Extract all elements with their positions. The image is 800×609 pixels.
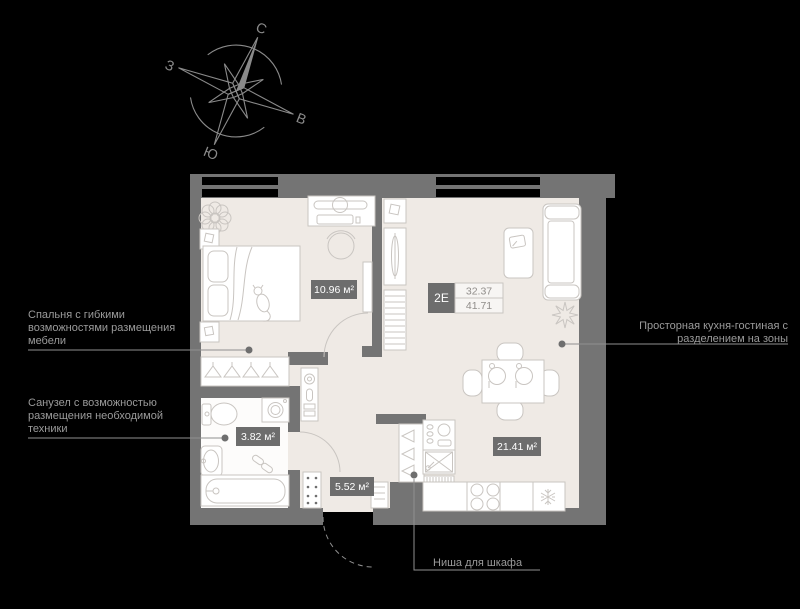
wall-bathroom-east-lower — [288, 470, 300, 508]
entrance-door-swing-arc — [323, 517, 373, 567]
bathroom-note-line3: техники — [28, 423, 67, 435]
bedroom-note-line3: мебели — [28, 335, 66, 347]
compass-point-south — [209, 89, 242, 147]
unit-area-bottom-label: 41.71 — [466, 300, 492, 312]
kitchen-leader-dot — [559, 341, 566, 348]
toilet — [202, 403, 237, 425]
wall-niche-top — [376, 414, 426, 424]
washing-machine — [262, 398, 289, 422]
window-kitchen-bar2 — [436, 189, 540, 197]
niche-leader-dot — [411, 472, 418, 479]
shelving-unit — [384, 290, 406, 350]
kitchen-sink — [423, 450, 455, 474]
compass-point-east — [234, 85, 296, 119]
compass-label-south: Ю — [201, 143, 220, 163]
sofa-armrest — [545, 206, 579, 219]
wall-bathroom-east-upper — [288, 386, 300, 432]
bathroom-leader-dot — [222, 435, 229, 442]
bathroom-sink — [201, 446, 222, 476]
bathroom-area-badge: 3.82 м² — [236, 427, 280, 446]
bedroom-area-label: 10.96 м² — [314, 284, 354, 296]
floor-plan-page: С Ю З В — [0, 0, 800, 609]
hallway-area-label: 5.52 м² — [335, 481, 370, 493]
wall-niche-bottom-chunk — [390, 482, 423, 508]
entry-cabinet — [301, 368, 318, 421]
bedroom-wardrobe — [201, 357, 289, 386]
compass-rose: С Ю З В — [138, 0, 334, 189]
bathtub — [201, 475, 289, 506]
dining-chair-bottom — [497, 401, 523, 420]
compass-label-east: В — [294, 109, 309, 127]
kitchen-counter — [423, 482, 565, 511]
compass-point-north — [230, 35, 263, 93]
kitchen-note-line1: Просторная кухня-гостиная с — [639, 320, 788, 332]
kitchen-living-area-badge: 21.41 м² — [493, 437, 541, 456]
kitchen-upper-cabinet — [423, 420, 455, 450]
desk — [308, 196, 375, 226]
bedroom-note-line2: возможностями размещения — [28, 322, 175, 334]
mirror-cabinet — [384, 228, 406, 285]
kitchen-living-area-label: 21.41 м² — [497, 441, 537, 453]
compass-arc-bottom — [182, 97, 264, 148]
doormat — [303, 472, 321, 508]
nightstand-bottom — [200, 322, 219, 342]
wall-bathroom-north — [194, 386, 300, 398]
window-bedroom-bar2 — [202, 189, 278, 197]
wall-bottom-left-segment — [190, 508, 323, 525]
floor-plan-canvas: С Ю З В — [0, 0, 800, 609]
kitchen-note-line2: разделением на зоны — [677, 333, 788, 345]
bathroom-area-label: 3.82 м² — [241, 431, 276, 443]
bedroom-area-badge: 10.96 м² — [311, 280, 357, 299]
door-leaf — [363, 262, 372, 312]
unit-code-label: 2Е — [434, 291, 449, 305]
compass-label-west: З — [163, 56, 177, 74]
bedroom-note-line1: Спальня с гибкими — [28, 309, 125, 321]
wall-bedroom-door-flange — [362, 346, 382, 357]
unit-area-top-label: 32.37 — [466, 286, 492, 298]
wall-bedroom-south-stub — [288, 352, 328, 365]
dining-table — [482, 360, 544, 403]
hallway-area-badge: 5.52 м² — [330, 477, 374, 496]
window-bedroom-bar1 — [202, 177, 278, 185]
bathroom-note-line1: Санузел с возможностью — [28, 397, 157, 409]
dining-chair-left — [463, 370, 482, 396]
bathroom-note-line2: размещения необходимой — [28, 410, 163, 422]
wall-right — [579, 174, 606, 525]
window-kitchen-bar1 — [436, 177, 540, 185]
dining-chair-top — [497, 343, 523, 362]
compass-point-west — [176, 62, 238, 96]
sofa — [543, 204, 581, 300]
unit-info-box: 2Е 32.37 41.71 — [428, 283, 503, 313]
sofa-armrest — [545, 285, 579, 298]
bedroom-leader-dot — [246, 347, 253, 354]
daybed — [504, 228, 533, 278]
hall-shelf-top — [384, 199, 406, 223]
niche-note-line1: Ниша для шкафа — [433, 557, 523, 569]
double-bed — [203, 246, 300, 321]
compass-label-north: С — [254, 19, 269, 38]
